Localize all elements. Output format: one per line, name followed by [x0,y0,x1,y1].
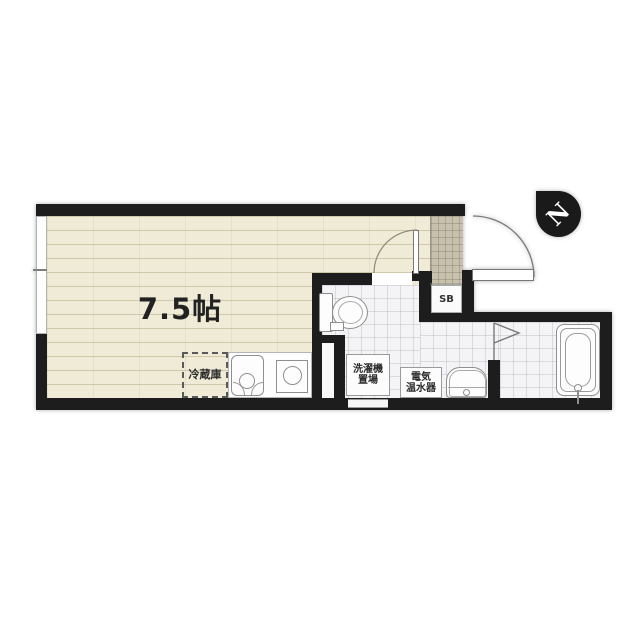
faucet-icon [239,373,255,389]
entrance-door-leaf [472,269,534,281]
toilet-control [330,322,344,331]
wash-basin [446,367,487,398]
room-size-label: 7.5帖 [110,286,250,328]
wall-room-south [312,273,372,285]
shoebox: SB [431,285,462,313]
shoebox-label: SB [439,294,454,305]
wall-shaft-top [312,335,345,343]
north-label: N [542,197,576,231]
refrigerator-label: 冷蔵庫 [189,369,222,381]
genkan-tile [430,216,463,285]
bathtub-inner [565,333,591,387]
pipe-shaft [322,343,334,398]
entrance-door-arc [473,216,534,277]
washer-pan [348,399,388,408]
toilet-bowl-inner [338,301,363,324]
washer-space: 洗濯機 置場 [346,354,390,396]
floor-plan-canvas: 7.5帖 冷蔵庫 洗濯機 置場 電気 温水器 [0,0,640,640]
window [36,216,47,334]
room-door-threshold [372,273,412,285]
floor-plan: 7.5帖 冷蔵庫 洗濯機 置場 電気 温水器 [0,0,640,640]
washer-label: 洗濯機 置場 [353,364,383,386]
refrigerator-space: 冷蔵庫 [182,352,228,398]
wall-shaft-east [334,343,345,398]
window-mullion [33,269,47,271]
room-door-leaf [413,230,419,274]
wall-bath-partition [488,360,500,398]
burner-icon [283,366,302,385]
water-heater: 電気 温水器 [400,367,442,398]
tub-drain-icon [574,384,582,392]
basin-drain-icon [463,389,470,396]
wall-bathroom-north [419,312,612,322]
wall-right [600,312,612,410]
wash-basin-edge [448,387,485,388]
water-heater-label: 電気 温水器 [406,372,436,394]
wall-bottom [36,398,612,410]
wall-top [36,204,465,216]
compass-north-icon: N [536,191,581,237]
